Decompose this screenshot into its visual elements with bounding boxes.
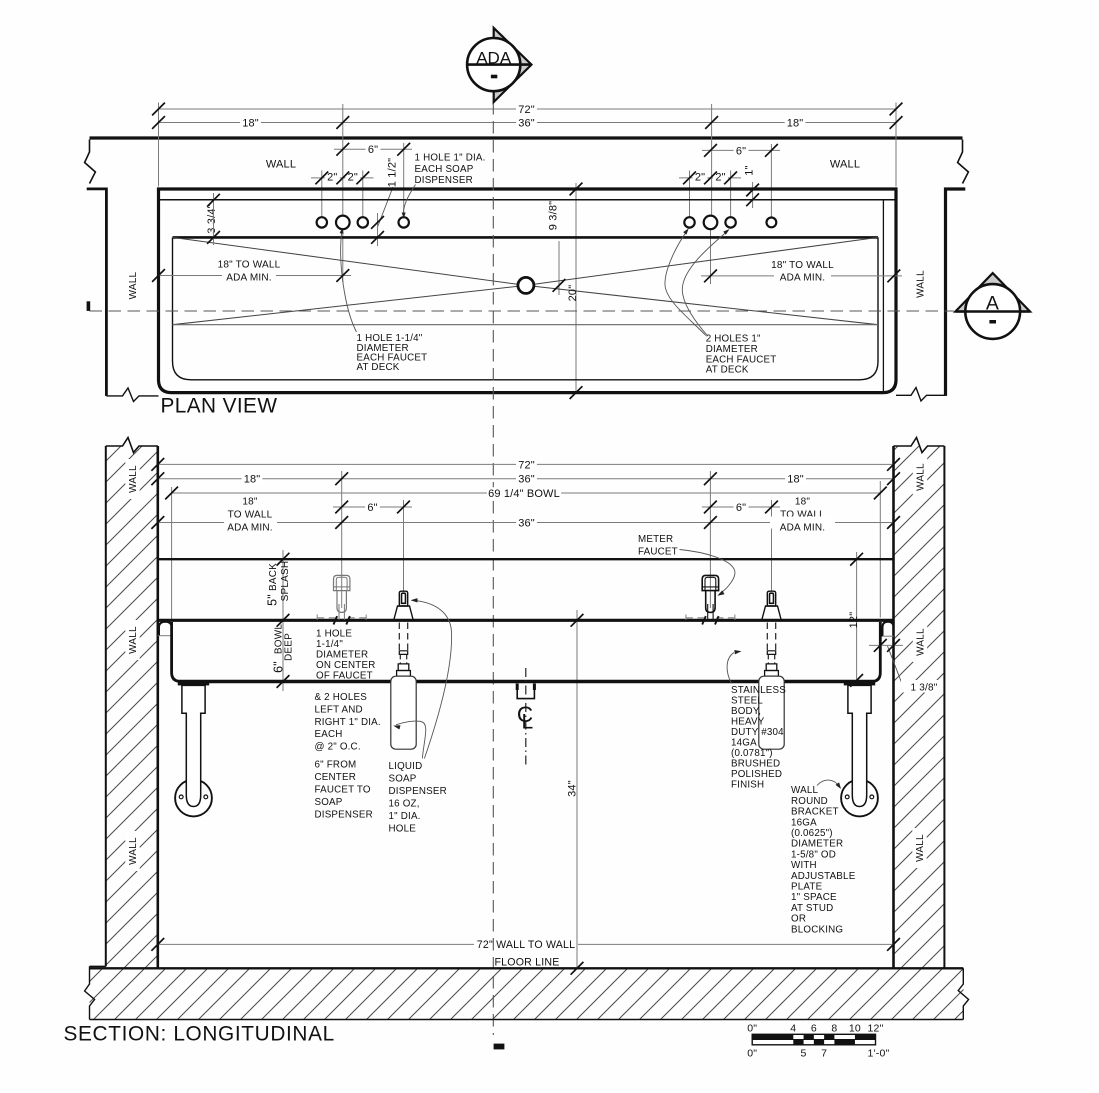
svg-text:18": 18" — [787, 117, 804, 129]
svg-text:ADA MIN.: ADA MIN. — [780, 273, 826, 284]
svg-text:10: 10 — [849, 1022, 861, 1034]
svg-text:WALL: WALL — [916, 463, 927, 491]
svg-text:WALL: WALL — [128, 837, 139, 865]
svg-text:SOAP: SOAP — [315, 797, 343, 808]
svg-text:1'-0": 1'-0" — [868, 1048, 890, 1060]
svg-text:1-5/8" OD: 1-5/8" OD — [791, 849, 836, 860]
svg-text:POLISHED: POLISHED — [731, 769, 782, 780]
svg-text:ROUND: ROUND — [791, 796, 828, 807]
svg-text:METER: METER — [638, 534, 673, 545]
svg-text:WALL: WALL — [830, 159, 860, 171]
svg-text:TO WALL: TO WALL — [228, 510, 273, 521]
svg-text:16GA: 16GA — [791, 817, 817, 828]
svg-text:DIAMETER: DIAMETER — [791, 839, 843, 850]
svg-text:L: L — [521, 711, 533, 734]
svg-text:18": 18" — [795, 497, 811, 508]
svg-text:LEFT AND: LEFT AND — [315, 705, 363, 716]
svg-text:18" TO WALL: 18" TO WALL — [771, 260, 834, 271]
svg-text:6: 6 — [811, 1022, 817, 1034]
svg-text:2 HOLES 1": 2 HOLES 1" — [706, 334, 761, 345]
svg-text:6": 6" — [368, 144, 378, 156]
svg-text:18": 18" — [242, 117, 259, 129]
svg-text:PLAN VIEW: PLAN VIEW — [161, 395, 278, 418]
svg-text:DISPENSER: DISPENSER — [315, 810, 373, 821]
svg-text:WALL: WALL — [915, 270, 926, 298]
svg-text:12": 12" — [848, 612, 860, 629]
svg-text:0": 0" — [747, 1048, 757, 1060]
svg-text:WALL: WALL — [128, 465, 139, 493]
svg-text:18": 18" — [244, 474, 261, 486]
svg-text:FLOOR LINE: FLOOR LINE — [495, 957, 560, 969]
svg-text:12": 12" — [867, 1022, 883, 1034]
svg-text:16 OZ,: 16 OZ, — [389, 798, 420, 809]
svg-text:2": 2" — [715, 172, 725, 184]
svg-text:CENTER: CENTER — [315, 772, 356, 783]
svg-text:WALL: WALL — [916, 628, 927, 656]
svg-text:ADJUSTABLE: ADJUSTABLE — [791, 871, 856, 882]
svg-text:FINISH: FINISH — [731, 780, 764, 791]
svg-text:SPLASH: SPLASH — [280, 561, 291, 602]
svg-text:EACH SOAP: EACH SOAP — [415, 164, 474, 175]
svg-text:BRUSHED: BRUSHED — [731, 759, 780, 770]
svg-text:HOLE: HOLE — [389, 823, 417, 834]
svg-text:FAUCET TO: FAUCET TO — [315, 785, 371, 796]
svg-text:DEEP: DEEP — [283, 633, 294, 661]
svg-text:0": 0" — [747, 1022, 757, 1034]
svg-text:ADA MIN.: ADA MIN. — [780, 522, 826, 533]
svg-text:5": 5" — [266, 594, 280, 606]
svg-text:DISPENSER: DISPENSER — [415, 175, 473, 186]
svg-text:(0.0625"): (0.0625") — [791, 828, 833, 839]
svg-text:HEAVY: HEAVY — [731, 717, 765, 728]
svg-text:6" FROM: 6" FROM — [315, 760, 357, 771]
svg-text:A: A — [986, 293, 999, 315]
svg-text:EACH FAUCET: EACH FAUCET — [706, 354, 777, 365]
svg-text:72" WALL TO WALL: 72" WALL TO WALL — [477, 939, 575, 951]
svg-text:20": 20" — [567, 285, 579, 302]
svg-text:69 1/4" BOWL: 69 1/4" BOWL — [488, 488, 560, 500]
svg-text:ADA: ADA — [476, 48, 512, 67]
svg-text:FAUCET: FAUCET — [638, 547, 678, 558]
svg-text:ADA MIN.: ADA MIN. — [227, 522, 273, 533]
svg-text:36": 36" — [518, 517, 535, 529]
svg-text:WALL: WALL — [791, 785, 818, 796]
svg-text:2": 2" — [695, 172, 705, 184]
svg-text:STAINLESS: STAINLESS — [731, 685, 786, 696]
svg-text:SECTION: LONGITUDINAL: SECTION: LONGITUDINAL — [64, 1023, 335, 1046]
svg-text:PLATE: PLATE — [791, 882, 823, 893]
svg-text:1 3/8": 1 3/8" — [911, 682, 938, 693]
svg-text:WALL: WALL — [128, 626, 139, 654]
svg-text:DUTY #304: DUTY #304 — [731, 727, 784, 738]
svg-text:1" SPACE: 1" SPACE — [791, 892, 837, 903]
svg-text:6": 6" — [367, 502, 377, 514]
svg-text:WALL: WALL — [128, 271, 139, 299]
svg-text:LIQUID: LIQUID — [389, 761, 423, 772]
svg-text:18": 18" — [787, 474, 804, 486]
svg-text:BRACKET: BRACKET — [791, 807, 839, 818]
svg-text:1" DIA.: 1" DIA. — [389, 811, 421, 822]
svg-text:WALL: WALL — [266, 159, 296, 171]
svg-text:(0.0781"): (0.0781") — [731, 748, 773, 759]
svg-text:18" TO WALL: 18" TO WALL — [218, 260, 281, 271]
svg-text:ADA MIN.: ADA MIN. — [226, 272, 272, 283]
svg-text:AT STUD: AT STUD — [791, 903, 833, 914]
svg-text:AT DECK: AT DECK — [706, 365, 749, 376]
svg-text:OR: OR — [791, 914, 806, 925]
svg-text:SOAP: SOAP — [389, 773, 417, 784]
svg-text:BLOCKING: BLOCKING — [791, 924, 843, 935]
svg-text:OF FAUCET: OF FAUCET — [316, 670, 373, 681]
svg-text:& 2 HOLES: & 2 HOLES — [315, 692, 368, 703]
svg-text:72": 72" — [518, 104, 535, 116]
svg-text:18": 18" — [242, 497, 258, 508]
svg-text:BODY,: BODY, — [731, 706, 761, 717]
svg-text:BACK: BACK — [268, 563, 279, 591]
svg-text:EACH: EACH — [315, 729, 343, 740]
svg-text:1-1/4": 1-1/4" — [316, 639, 343, 650]
svg-text:ON CENTER: ON CENTER — [316, 660, 376, 671]
svg-text:2": 2" — [327, 172, 337, 184]
svg-text:1 HOLE 1" DIA.: 1 HOLE 1" DIA. — [415, 153, 486, 164]
svg-text:2": 2" — [348, 172, 358, 184]
svg-text:36": 36" — [518, 117, 535, 129]
svg-text:9 3/8": 9 3/8" — [547, 201, 559, 231]
svg-text:72": 72" — [518, 459, 535, 471]
svg-text:6": 6" — [736, 502, 746, 514]
svg-text:WITH: WITH — [791, 860, 817, 871]
svg-text:34": 34" — [566, 780, 578, 797]
svg-text:1 HOLE: 1 HOLE — [316, 628, 352, 639]
svg-text:@ 2" O.C.: @ 2" O.C. — [315, 741, 361, 752]
svg-text:36": 36" — [518, 474, 535, 486]
svg-text:AT DECK: AT DECK — [357, 362, 400, 373]
svg-text:STEEL: STEEL — [731, 696, 763, 707]
svg-text:RIGHT 1" DIA.: RIGHT 1" DIA. — [315, 717, 381, 728]
svg-text:WALL: WALL — [915, 834, 926, 862]
svg-text:DIAMETER: DIAMETER — [706, 344, 758, 355]
svg-text:5: 5 — [801, 1048, 807, 1060]
svg-text:3 3/4": 3 3/4" — [206, 204, 218, 234]
svg-text:DIAMETER: DIAMETER — [316, 649, 368, 660]
svg-text:8: 8 — [831, 1022, 837, 1034]
svg-text:6": 6" — [271, 661, 285, 673]
svg-text:6": 6" — [736, 145, 746, 157]
svg-text:7: 7 — [821, 1048, 827, 1060]
svg-text:1 1/2": 1 1/2" — [386, 158, 398, 188]
svg-text:1": 1" — [743, 165, 755, 175]
svg-text:DISPENSER: DISPENSER — [389, 786, 447, 797]
svg-text:4: 4 — [790, 1022, 796, 1034]
svg-text:14GA: 14GA — [731, 738, 757, 749]
